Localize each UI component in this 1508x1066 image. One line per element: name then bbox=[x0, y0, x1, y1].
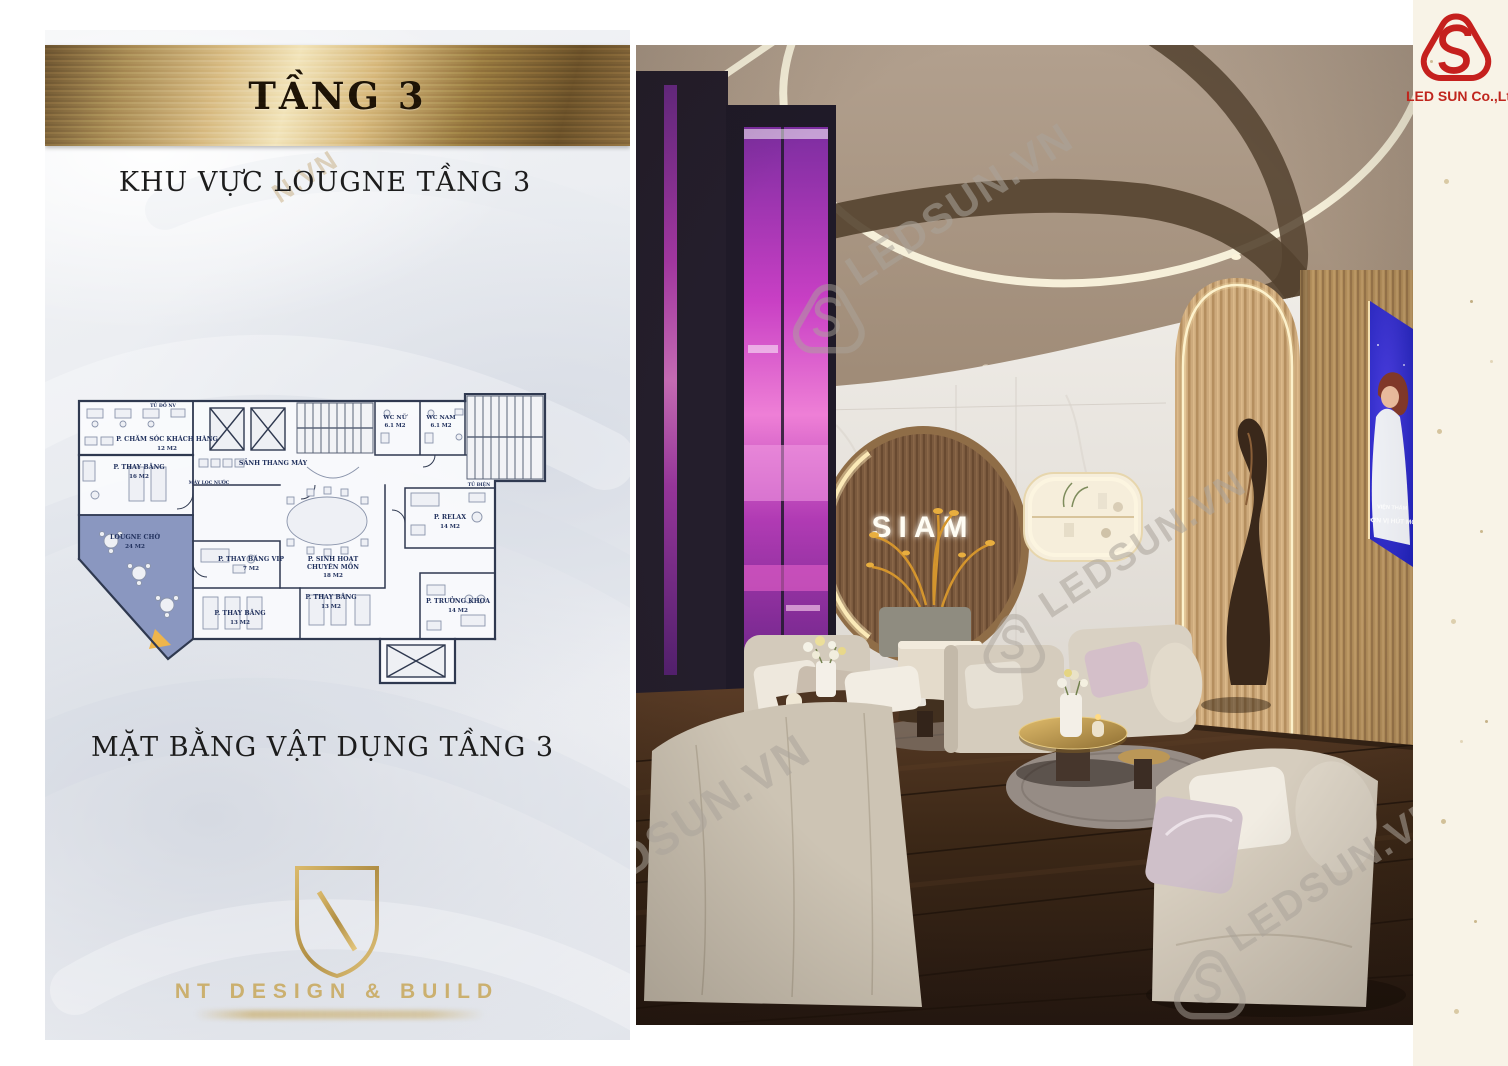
room-label: WC NỮ bbox=[382, 413, 408, 421]
room-area: 6.1 M2 bbox=[431, 423, 452, 429]
room-label: P. CHĂM SÓC KHÁCH HÀNG bbox=[116, 435, 218, 443]
interior-render: SIAM bbox=[636, 45, 1413, 1025]
room-label: P. TRƯỞNG KHOA bbox=[426, 597, 490, 605]
nt-monogram-icon bbox=[319, 892, 371, 958]
room-label: SẢNH THANG MÁY bbox=[239, 459, 308, 467]
room-area: 12 M2 bbox=[157, 446, 177, 452]
ledsun-brand: LED SUN Co.,Ltd® bbox=[1406, 12, 1506, 120]
page-margin-strip bbox=[1413, 0, 1508, 1066]
room-area: 18 M2 bbox=[323, 573, 343, 579]
room-label: P. RELAX bbox=[434, 514, 466, 521]
ledsun-brand-name: LED SUN Co.,Ltd® bbox=[1406, 88, 1506, 104]
title-banner: TẦNG 3 bbox=[45, 45, 630, 146]
room-area: 14 M2 bbox=[440, 524, 460, 530]
room-area: 13 M2 bbox=[321, 604, 341, 610]
room-area: 24 M2 bbox=[125, 544, 145, 550]
room-label: WC NAM bbox=[425, 415, 456, 421]
plan-caption: MẶT BẰNG VẬT DỤNG TẦNG 3 bbox=[45, 732, 600, 763]
nt-logo-tagline-blur bbox=[195, 1010, 485, 1019]
room-label: P. THAY BĂNG bbox=[214, 609, 265, 617]
brand-name-text: LED SUN Co.,Ltd bbox=[1406, 88, 1508, 104]
room-label: LOUGNE CHỜ bbox=[110, 533, 160, 541]
page-title: TẦNG 3 bbox=[45, 45, 630, 146]
room-label: CHUYÊN MÔN bbox=[307, 563, 359, 571]
floor-plan: P. CHĂM SÓC KHÁCH HÀNG 12 M2 P. THAY BĂN… bbox=[75, 393, 547, 685]
room-area: 6.1 M2 bbox=[385, 423, 406, 429]
room-label: P. THAY BĂNG VIP bbox=[218, 555, 284, 563]
ledsun-triangle-s-icon bbox=[1418, 12, 1494, 84]
room-label: P. THAY BĂNG bbox=[305, 593, 356, 601]
room-label: P. SINH HOẠT bbox=[308, 556, 359, 563]
nt-design-build-logo bbox=[267, 862, 407, 982]
room-area: 16 M2 bbox=[129, 474, 149, 480]
room-area: 13 M2 bbox=[230, 620, 250, 626]
room-label: P. THAY BĂNG bbox=[113, 463, 164, 471]
room-area: 7 M2 bbox=[243, 566, 259, 572]
floorplan-panel: TẦNG 3 N.VN KHU VỰC LOUGNE TẦNG 3 bbox=[45, 30, 630, 1040]
area-subtitle: KHU VỰC LOUGNE TẦNG 3 bbox=[45, 167, 605, 198]
nt-logo-name: NT DESIGN & BUILD bbox=[87, 980, 587, 1004]
room-area: 14 M2 bbox=[448, 608, 468, 614]
